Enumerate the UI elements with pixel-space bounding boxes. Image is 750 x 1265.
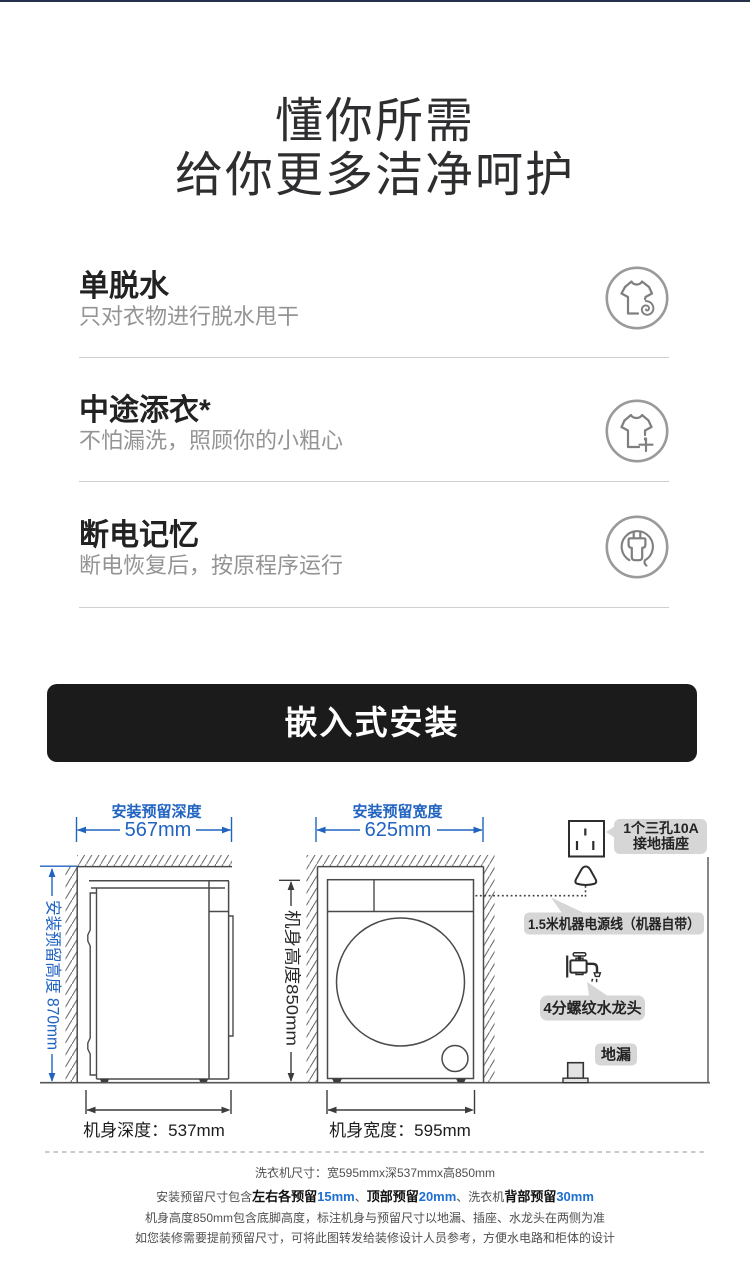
svg-text:1个三孔10A: 1个三孔10A [623,820,698,836]
svg-text:1.5米机器电源线（机器自带）: 1.5米机器电源线（机器自带） [528,916,700,932]
svg-text:567mm: 567mm [125,819,192,841]
svg-text:安装预留深度: 安装预留深度 [111,803,202,821]
svg-text:4分螺纹水龙头: 4分螺纹水龙头 [543,999,641,1017]
svg-text:机身深度：537mm: 机身深度：537mm [83,1121,225,1140]
svg-text:625mm: 625mm [365,819,432,841]
svg-text:安装预留宽度: 安装预留宽度 [352,803,443,821]
svg-text:安装预留高度 870mm: 安装预留高度 870mm [44,900,63,1050]
svg-text:接地插座: 接地插座 [633,836,689,852]
svg-text:机身宽度：595mm: 机身宽度：595mm [329,1121,471,1140]
svg-text:机身高度850mm: 机身高度850mm [283,910,302,1046]
svg-text:地漏: 地漏 [601,1046,631,1064]
